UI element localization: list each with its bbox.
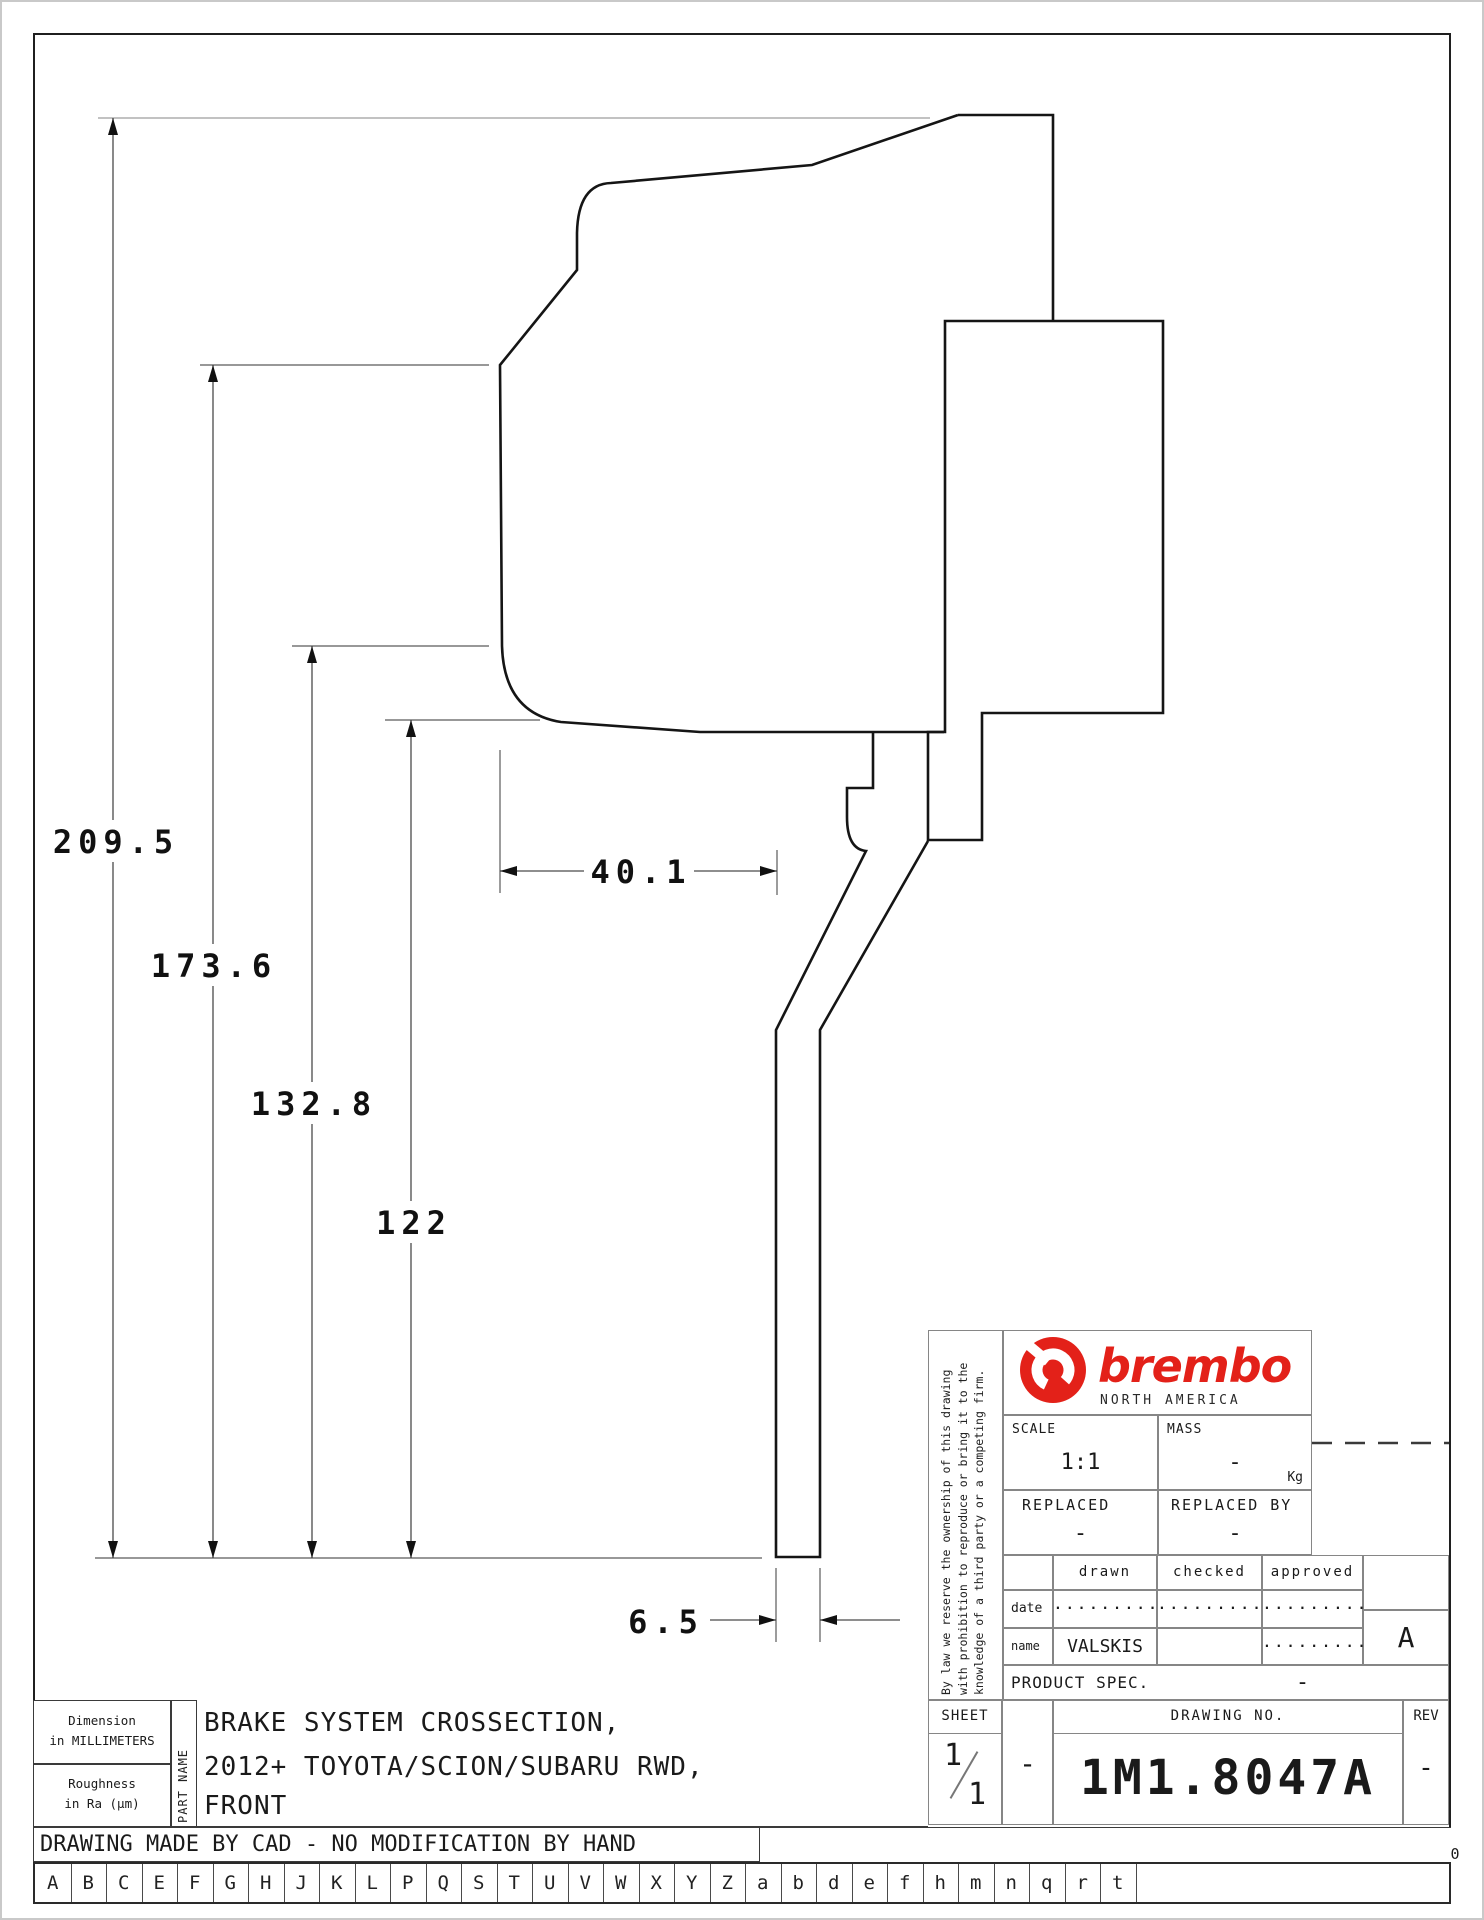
hat-top-right-edge (958, 115, 1053, 321)
product-spec-label: PRODUCT SPEC. (1003, 1665, 1157, 1700)
vane-profile (776, 732, 928, 1557)
extension-lines (95, 365, 820, 1642)
letter-cell: J (284, 1864, 321, 1902)
dim-label-122: 122 (376, 1204, 452, 1242)
projection-symbol-cell (1363, 1555, 1449, 1610)
name-drawn-value: VALSKIS (1053, 1628, 1157, 1665)
replaced-by-value: - (1159, 1521, 1311, 1546)
letter-cell: t (1100, 1864, 1137, 1902)
letter-cell: K (319, 1864, 356, 1902)
letter-cell: f (887, 1864, 924, 1902)
dim-label-overall-height: 209.5 (53, 823, 179, 861)
name-approved-value: ......... (1262, 1628, 1363, 1665)
name-checked-value (1157, 1628, 1262, 1665)
rev-label: REV (1404, 1701, 1448, 1733)
scale-label: SCALE (1012, 1422, 1056, 1437)
sheet-cell: SHEET 1 1 (928, 1700, 1002, 1825)
name-row-label: name (1003, 1628, 1053, 1665)
replaced-value: - (1004, 1521, 1157, 1546)
sheet-label: SHEET (929, 1701, 1001, 1734)
drawing-sheet: 209.5 173.6 132.8 122 40.1 6.5 010203040… (0, 0, 1484, 1920)
letter-cell: L (355, 1864, 392, 1902)
replaced-cell: REPLACED - (1003, 1490, 1158, 1555)
mass-cell: MASS - Kg (1158, 1415, 1312, 1490)
replaced-by-label: REPLACED BY (1171, 1496, 1292, 1514)
letter-cell: S (461, 1864, 498, 1902)
letter-cell: a (745, 1864, 782, 1902)
zone-marker: A (1363, 1610, 1449, 1665)
letter-cell: T (497, 1864, 534, 1902)
dimension-note-line2: in MILLIMETERS (34, 1731, 170, 1751)
drawn-header: drawn (1053, 1555, 1157, 1590)
drawing-no-label: DRAWING NO. (1054, 1701, 1402, 1734)
letter-cell: B (71, 1864, 108, 1902)
letter-cell: W (603, 1864, 640, 1902)
legal-notice-column: By law we reserve the ownership of this … (928, 1330, 1003, 1700)
replaced-label: REPLACED (1022, 1496, 1110, 1514)
dim-label-132-8: 132.8 (251, 1085, 377, 1123)
date-drawn-value: ......... (1053, 1590, 1157, 1628)
dim-label-40-1: 40.1 (590, 853, 691, 891)
letter-cell: X (639, 1864, 676, 1902)
letter-cell: H (248, 1864, 285, 1902)
checked-header: checked (1157, 1555, 1262, 1590)
letter-cell: q (1029, 1864, 1066, 1902)
letter-cell: r (1065, 1864, 1102, 1902)
letter-cell: b (781, 1864, 818, 1902)
approved-header: approved (1262, 1555, 1363, 1590)
letter-cell: C (106, 1864, 143, 1902)
hat-left-profile (500, 115, 958, 732)
scale-cell: SCALE 1:1 (1003, 1415, 1158, 1490)
brand-cell: brembo NORTH AMERICA (1003, 1330, 1312, 1415)
letter-cell: U (532, 1864, 569, 1902)
letter-cell: E (142, 1864, 179, 1902)
part-name-box: BRAKE SYSTEM CROSSECTION, 2012+ TOYOTA/S… (197, 1700, 928, 1827)
hub-flange-outline (928, 321, 1163, 840)
part-name-line2: 2012+ TOYOTA/SCION/SUBARU RWD, (204, 1752, 704, 1782)
rev-cell: REV - (1403, 1700, 1449, 1825)
letter-cell: e (852, 1864, 889, 1902)
ruler-band (760, 1827, 1451, 1862)
sheet-total: 1 (968, 1777, 986, 1812)
letter-cell: Z (710, 1864, 747, 1902)
part-name-line1: BRAKE SYSTEM CROSSECTION, (204, 1708, 620, 1738)
signoff-corner-cell (1003, 1555, 1053, 1590)
date-row-label: date (1003, 1590, 1053, 1628)
letter-cell: Y (674, 1864, 711, 1902)
dimension-lines (113, 118, 900, 1620)
dim-label-173-6: 173.6 (151, 947, 277, 985)
mass-label: MASS (1167, 1422, 1202, 1437)
dim-label-6-5: 6.5 (628, 1603, 704, 1641)
letter-cell: d (816, 1864, 853, 1902)
brembo-logo-icon (1018, 1335, 1088, 1405)
letter-cell: P (390, 1864, 427, 1902)
brand-region: NORTH AMERICA (1100, 1393, 1241, 1408)
sheet-current: 1 (944, 1738, 962, 1773)
replaced-by-cell: REPLACED BY - (1158, 1490, 1312, 1555)
letter-strip: ABCEFGHJKLPQSTUVWXYZabdefhmnqrt (33, 1862, 1451, 1904)
dimension-note-line1: Dimension (34, 1711, 170, 1731)
rev-value: - (1404, 1733, 1448, 1803)
letter-cell: V (568, 1864, 605, 1902)
roughness-note-line2: in Ra (μm) (34, 1794, 170, 1814)
brand-wordmark: brembo (1098, 1339, 1291, 1393)
roughness-note-box: Roughness in Ra (μm) (33, 1764, 171, 1827)
letter-cell: A (35, 1864, 72, 1902)
roughness-note-line1: Roughness (34, 1774, 170, 1794)
product-spec-value: - (1157, 1665, 1449, 1700)
letter-cell: Q (426, 1864, 463, 1902)
scale-value: 1:1 (1004, 1450, 1157, 1475)
cad-note: DRAWING MADE BY CAD - NO MODIFICATION BY… (33, 1827, 760, 1862)
letter-cell: G (213, 1864, 250, 1902)
mass-unit: Kg (1287, 1470, 1303, 1485)
drawing-no-cell: DRAWING NO. 1M1.8047A (1053, 1700, 1403, 1825)
letter-cell: h (923, 1864, 960, 1902)
date-checked-value: ......... (1157, 1590, 1262, 1628)
sheet-dash-cell: - (1002, 1700, 1053, 1825)
date-approved-value: ......... (1262, 1590, 1363, 1628)
part-name-line3: FRONT (204, 1791, 287, 1821)
sheet-number: 1 1 (941, 1740, 989, 1812)
part-name-label-strip: PART NAME (171, 1700, 197, 1827)
drawing-no-value: 1M1.8047A (1054, 1734, 1402, 1822)
letter-cell: n (994, 1864, 1031, 1902)
part-name-label: PART NAME (176, 1705, 190, 1823)
dimension-note-box: Dimension in MILLIMETERS (33, 1700, 171, 1764)
letter-cell: F (177, 1864, 214, 1902)
letter-cell: m (958, 1864, 995, 1902)
legal-notice-text: By law we reserve the ownership of this … (938, 1337, 988, 1695)
